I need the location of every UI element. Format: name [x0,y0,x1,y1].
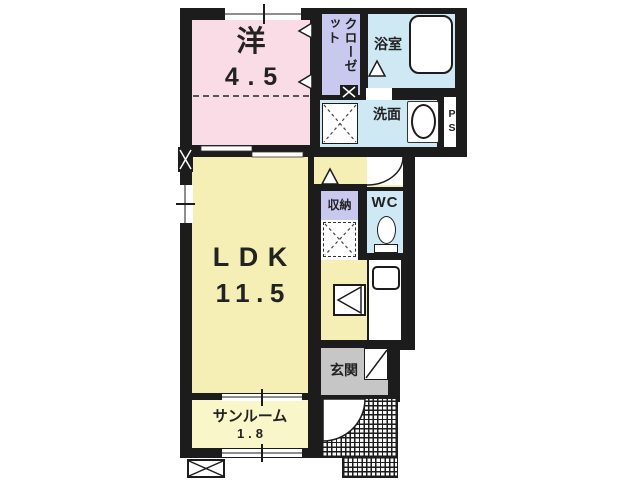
kitchen-sink [372,266,400,290]
label-closet: クローゼット [324,17,359,77]
label-ldk-area: 11.5 [192,280,308,307]
label-washroom: 洗面 [362,107,412,122]
toilet-bowl [377,216,396,244]
wall-storage-left [314,184,321,260]
wc-door-swing-area [367,157,403,185]
toilet-tank [374,244,398,253]
label-sunroom-area: 1.8 [192,427,308,441]
outdoor-ac-unit [187,459,225,478]
label-pipe-space: PS [443,99,457,145]
wall-entrance-left [306,340,321,458]
refrigerator-space [323,222,356,257]
label-sunroom: サンルーム [192,409,308,425]
floorplan-canvas: 洋 4.5 クローゼット 浴室 洗面 PS 収納 WC LDK 11.5 玄関 … [0,0,640,480]
window-sunroom-bottom [222,449,302,457]
label-bathroom: 浴室 [367,37,409,52]
wall-storage-right [358,184,367,260]
stove-unit [333,284,366,316]
washing-machine-pan [322,103,358,144]
label-storage: 収納 [321,199,358,212]
window-sunroom-top [222,394,302,401]
window-top [225,8,301,20]
wash-basin [411,104,436,139]
vent-box-left [178,147,193,172]
porch-area [321,398,398,458]
vent-box-washroom [340,85,358,99]
bathtub [409,15,453,74]
label-western-area: 4.5 [192,64,310,90]
porch-step [342,456,398,478]
dashed-partition-line [193,95,309,97]
label-wc: WC [367,195,403,211]
label-entrance: 玄関 [320,363,368,378]
window-left [179,185,193,223]
label-ldk: LDK [192,243,308,271]
label-western-room: 洋 [192,27,310,57]
room-ldk [192,157,308,393]
bathroom-door-opening [366,88,392,100]
